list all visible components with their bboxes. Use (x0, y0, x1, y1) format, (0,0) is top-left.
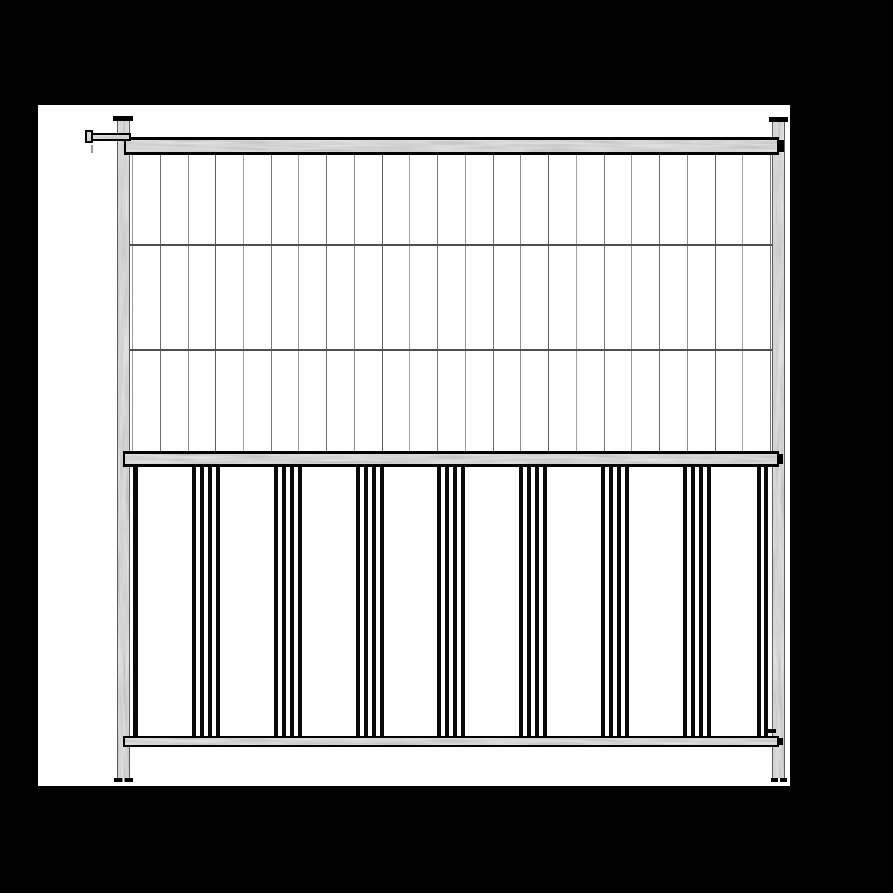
mesh-wire (215, 155, 216, 451)
stanchion-bar (437, 467, 441, 736)
rail-connector-slot (777, 738, 783, 745)
mesh-wire (604, 155, 605, 451)
mesh-wire (354, 155, 355, 451)
mesh-wire (715, 155, 716, 451)
mesh-wire (576, 155, 577, 451)
mesh-wire (160, 155, 161, 451)
stanchion-bar (290, 467, 294, 736)
mesh-wire (493, 155, 494, 451)
mesh-wire (188, 155, 189, 451)
mesh-wire (326, 155, 327, 451)
mesh-wire (132, 155, 133, 451)
mesh-wire (548, 155, 549, 451)
bottom-rail (123, 736, 779, 747)
stanchion-bar (764, 467, 768, 736)
right-post-cap (769, 117, 788, 122)
right-post-foot (771, 778, 787, 782)
stanchion-bar (527, 467, 531, 736)
mesh-wire (298, 155, 299, 451)
stanchion-bar (535, 467, 539, 736)
stanchion-bar (461, 467, 465, 736)
stanchion-bar (609, 467, 613, 736)
mesh-cross-wire (129, 244, 772, 246)
mesh-wire (382, 155, 383, 451)
mesh-wire (465, 155, 466, 451)
stanchion-bar (364, 467, 368, 736)
product-image (0, 0, 893, 893)
stanchion-bar (691, 467, 695, 736)
left-post-foot (114, 778, 133, 782)
mesh-wire (687, 155, 688, 451)
stanchion-bar (543, 467, 547, 736)
mesh-wire (271, 155, 272, 451)
mesh-wire (409, 155, 410, 451)
top-rail (124, 137, 779, 155)
stanchion-bar (208, 467, 212, 736)
stanchion-bar (274, 467, 278, 736)
product-canvas (38, 105, 790, 786)
top-rail-texture (126, 140, 777, 152)
stanchion-bar (200, 467, 204, 736)
mesh-wire (659, 155, 660, 451)
stanchion-bar (683, 467, 687, 736)
bottom-rail-texture (125, 738, 777, 745)
stanchion-bar (133, 467, 138, 736)
rail-connector-slot (777, 454, 783, 464)
stanchion-bar (192, 467, 196, 736)
mesh-wire (742, 155, 743, 451)
latch-arm (87, 133, 131, 141)
stanchion-bar (453, 467, 457, 736)
stanchion-bar (699, 467, 703, 736)
bar-bracket-tab (768, 729, 776, 733)
stanchion-bar (625, 467, 629, 736)
latch-lug (85, 130, 93, 143)
latch-lug-texture (87, 132, 91, 141)
stanchion-bar (445, 467, 449, 736)
mesh-cross-wire (129, 349, 772, 351)
stanchion-bar (601, 467, 605, 736)
mesh-wire (770, 155, 771, 451)
stanchion-bar (617, 467, 621, 736)
rail-connector-slot (779, 140, 784, 152)
stanchion-bar (519, 467, 523, 736)
mesh-wire (631, 155, 632, 451)
stanchion-bar (298, 467, 302, 736)
mesh-wire (520, 155, 521, 451)
mesh-wire (437, 155, 438, 451)
middle-rail-texture (125, 454, 777, 464)
latch-drip-mark (91, 145, 93, 153)
left-post-cap (113, 116, 133, 121)
stanchion-bar (380, 467, 384, 736)
middle-rail (123, 451, 779, 467)
stanchion-bar (356, 467, 360, 736)
stanchion-bar (757, 467, 761, 736)
stanchion-bar (707, 467, 711, 736)
stanchion-bar (216, 467, 220, 736)
mesh-wire (243, 155, 244, 451)
stanchion-bar (372, 467, 376, 736)
stanchion-bar (282, 467, 286, 736)
latch-arm-texture (89, 135, 129, 139)
